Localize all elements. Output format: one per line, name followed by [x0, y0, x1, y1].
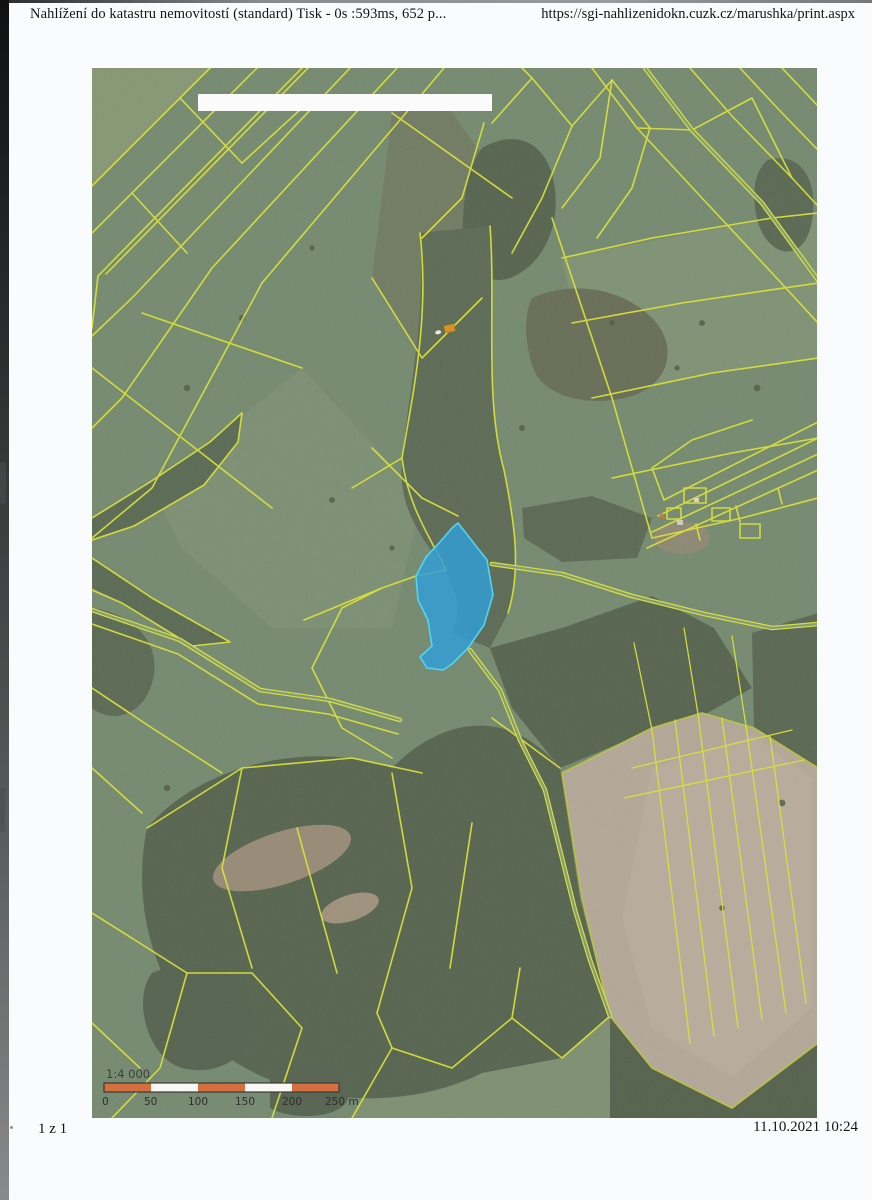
scale-segment: [151, 1083, 198, 1092]
scale-tick: 100: [188, 1096, 208, 1108]
scale-tick: 50: [144, 1096, 157, 1108]
scale-tick: 0: [102, 1096, 109, 1108]
cadastral-aerial-map: 1:4 000 0 50 100 150 200 250 m: [92, 68, 817, 1118]
scale-segment: [104, 1083, 151, 1092]
settlement-roof: [660, 514, 665, 519]
scan-artifact: [10, 1126, 13, 1129]
print-header-url: https://sgi-nahlizenidokn.cuzk.cz/marush…: [541, 6, 855, 23]
scale-segment: [245, 1083, 292, 1092]
scan-artifact: [0, 462, 6, 504]
scale-tick: 250 m: [325, 1096, 359, 1108]
scale-tick: 150: [235, 1096, 255, 1108]
scan-artifact: [0, 788, 5, 832]
scale-tick: 200: [282, 1096, 302, 1108]
scan-edge-left: [0, 0, 9, 1200]
redacted-label-box: [198, 94, 492, 111]
scale-ratio-label: 1:4 000: [106, 1067, 150, 1081]
farm-building: [444, 324, 455, 333]
scale-segment: [198, 1083, 245, 1092]
settlement-building: [694, 498, 699, 502]
scale-segment: [292, 1083, 339, 1092]
scan-edge-top: [0, 0, 872, 3]
print-datetime: 11.10.2021 10:24: [753, 1119, 858, 1136]
page-number: 1 z 1: [38, 1121, 67, 1138]
print-header-title: Nahlížení do katastru nemovitostí (stand…: [30, 6, 446, 23]
settlement-building: [677, 520, 683, 525]
